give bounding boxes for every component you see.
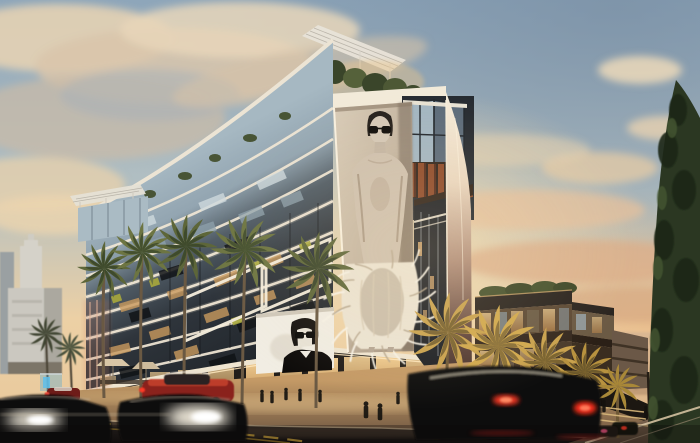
rendering-canvas [0, 0, 700, 443]
blurred-dark-car [117, 394, 247, 441]
scene-svg [0, 0, 700, 443]
portrait-billboard [256, 307, 334, 374]
dark-sedan [407, 366, 601, 440]
